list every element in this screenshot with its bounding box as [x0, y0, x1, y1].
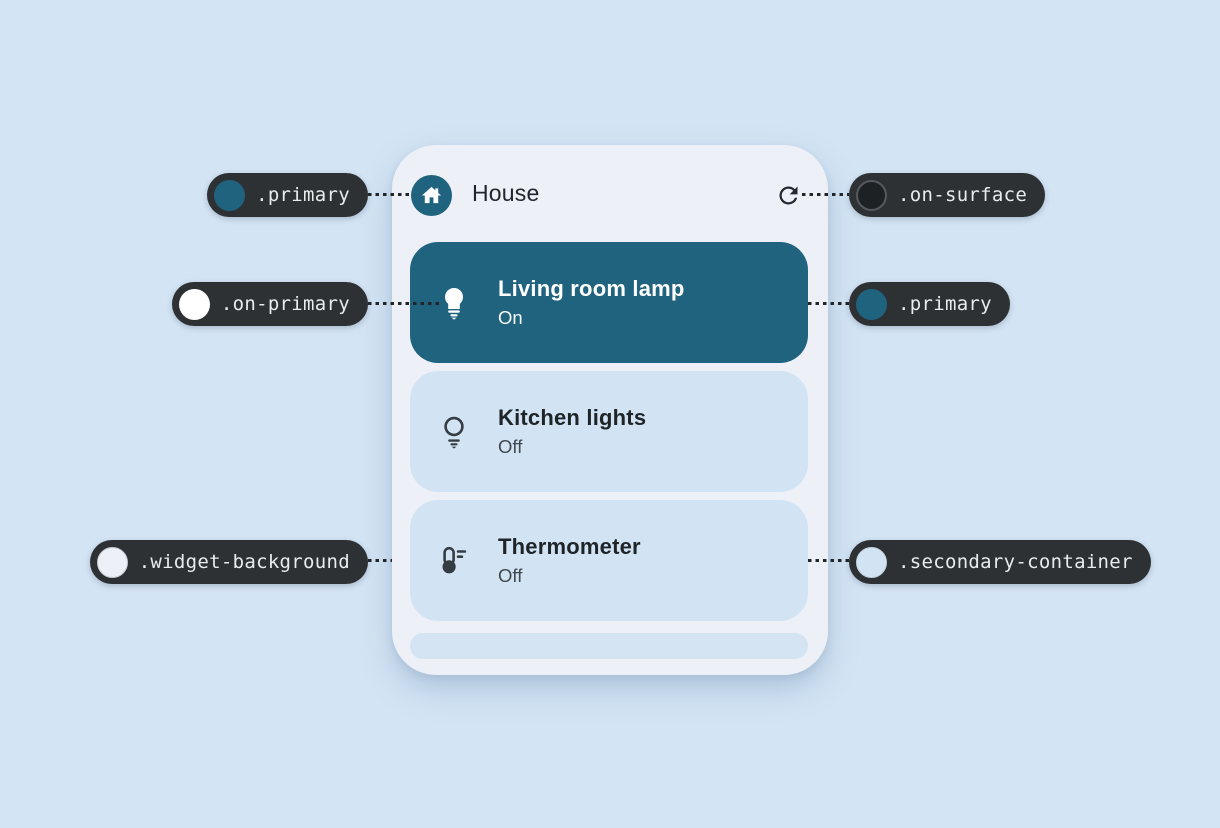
- home-widget: House Living room lamp On: [392, 145, 828, 675]
- color-swatch-on-surface: [856, 180, 887, 211]
- device-row-kitchen-lights[interactable]: Kitchen lights Off: [410, 371, 808, 492]
- leader-line-widget-background: [368, 559, 392, 562]
- lightbulb-outline-icon: [410, 415, 498, 449]
- callout-primary-right: .primary: [849, 282, 1010, 326]
- callout-label: .on-primary: [221, 293, 350, 315]
- leader-line-primary-left: [368, 193, 412, 196]
- thermometer-icon: [410, 544, 498, 578]
- callout-widget-background: .widget-background: [90, 540, 368, 584]
- callout-secondary-container: .secondary-container: [849, 540, 1151, 584]
- leader-line-on-primary: [368, 302, 441, 305]
- home-icon-glyph: [420, 184, 443, 207]
- leader-line-primary-right: [808, 302, 849, 305]
- refresh-button[interactable]: [774, 181, 802, 209]
- device-row-text: Thermometer Off: [498, 534, 641, 587]
- device-status: Off: [498, 565, 641, 587]
- callout-on-surface: .on-surface: [849, 173, 1045, 217]
- device-row-text: Kitchen lights Off: [498, 405, 646, 458]
- device-name: Living room lamp: [498, 276, 685, 302]
- leader-line-on-surface: [802, 193, 849, 196]
- widget-header: House: [392, 145, 828, 242]
- callout-label: .secondary-container: [898, 551, 1133, 573]
- callout-label: .primary: [256, 184, 350, 206]
- color-swatch-primary: [214, 180, 245, 211]
- callout-label: .widget-background: [139, 551, 350, 573]
- device-row-thermometer[interactable]: Thermometer Off: [410, 500, 808, 621]
- annotated-widget-figure: House Living room lamp On: [0, 0, 1220, 828]
- color-swatch-primary: [856, 289, 887, 320]
- device-status: Off: [498, 436, 646, 458]
- callout-primary-left: .primary: [207, 173, 368, 217]
- callout-label: .primary: [898, 293, 992, 315]
- device-row-text: Living room lamp On: [498, 276, 685, 329]
- clipped-next-row-pill: [410, 633, 808, 659]
- home-icon: [411, 175, 452, 216]
- device-name: Thermometer: [498, 534, 641, 560]
- lightbulb-outline-glyph: [441, 415, 467, 449]
- color-swatch-widget-background: [97, 547, 128, 578]
- color-swatch-secondary-container: [856, 547, 887, 578]
- color-swatch-on-primary: [179, 289, 210, 320]
- device-status: On: [498, 307, 685, 329]
- device-name: Kitchen lights: [498, 405, 646, 431]
- thermometer-glyph: [437, 544, 471, 578]
- widget-title: House: [472, 145, 539, 242]
- device-row-living-room-lamp[interactable]: Living room lamp On: [410, 242, 808, 363]
- callout-on-primary: .on-primary: [172, 282, 368, 326]
- callout-label: .on-surface: [898, 184, 1027, 206]
- refresh-icon: [775, 182, 802, 209]
- lightbulb-filled-glyph: [441, 286, 467, 320]
- leader-line-secondary-container: [808, 559, 849, 562]
